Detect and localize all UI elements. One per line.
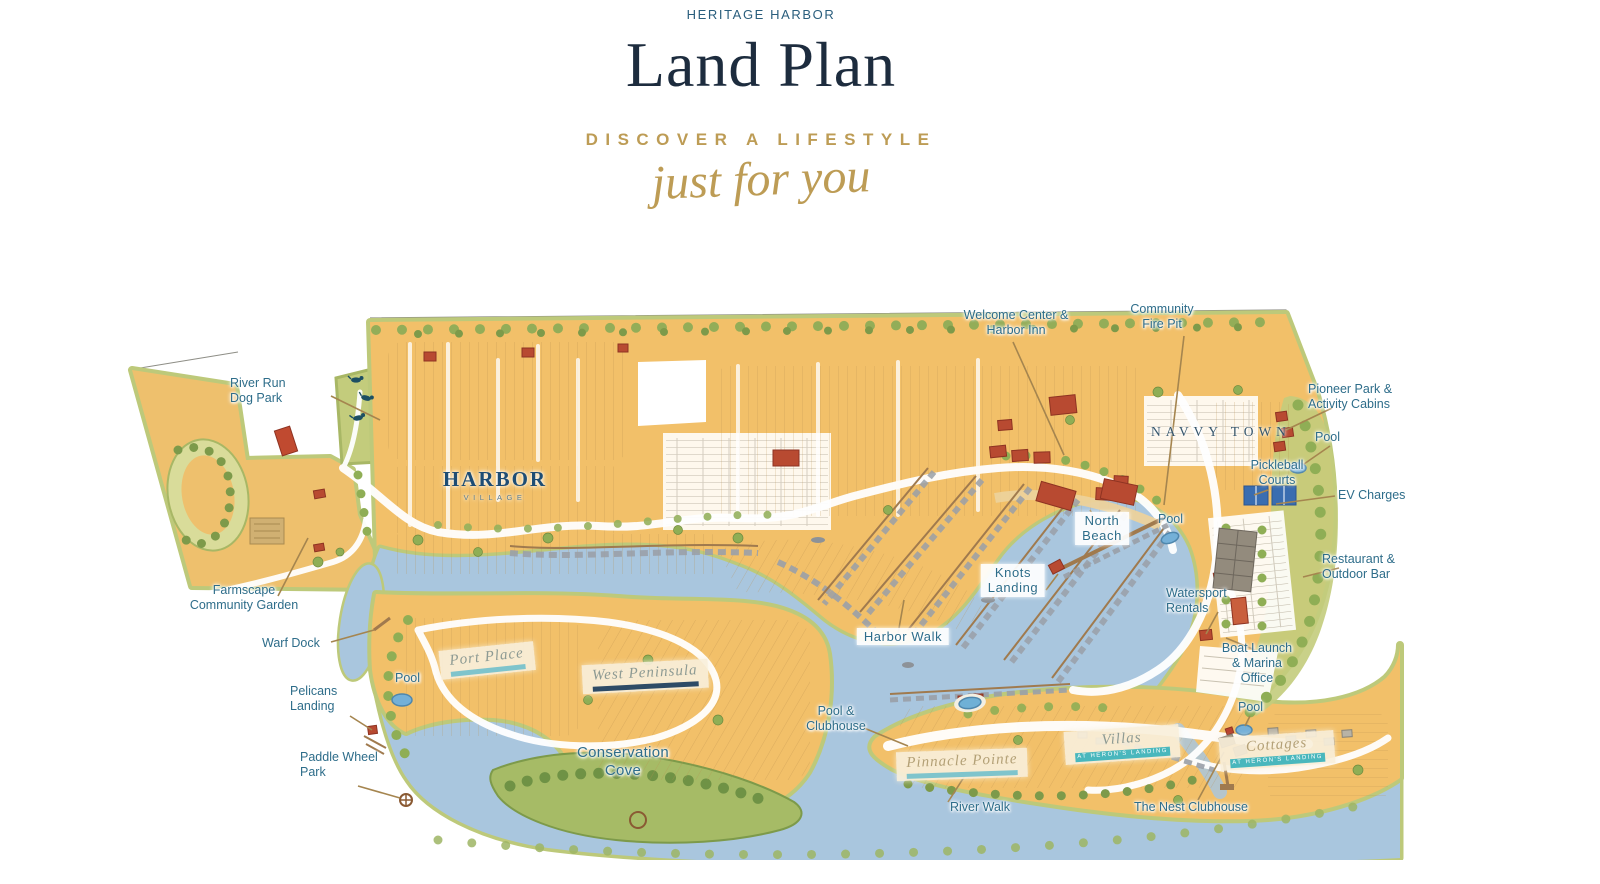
callout-pool-top-right: Pool [1315, 430, 1340, 445]
callout-pickleball-courts: Pickleball Courts [1251, 458, 1304, 488]
callout-welcome-center-harbor-inn: Welcome Center & Harbor Inn [964, 308, 1069, 338]
callout-pioneer-park-activity-cabins: Pioneer Park & Activity Cabins [1308, 382, 1392, 412]
callout-conservation-cove: Conservation Cove [577, 744, 669, 779]
callout-community-fire-pit: Community Fire Pit [1130, 302, 1193, 332]
callout-ev-charges: EV Charges [1338, 488, 1405, 503]
district-harbor-village-name: HARBOR [443, 467, 547, 492]
callout-warf-dock: Warf Dock [262, 636, 320, 651]
callout-river-walk: River Walk [950, 800, 1010, 815]
callout-paddle-wheel-park: Paddle Wheel Park [300, 750, 378, 780]
callout-watersport-rentals: Watersport Rentals [1166, 586, 1227, 616]
callout-farmscape-community-garden: Farmscape Community Garden [190, 583, 298, 613]
land-plan-map: HARBOR VILLAGE NAVVY TOWN Port Place Wes… [118, 300, 1408, 860]
callout-boat-launch-marina-office: Boat Launch & Marina Office [1222, 641, 1292, 685]
district-navvy-town: NAVVY TOWN [1151, 424, 1291, 440]
callout-restaurant-outdoor-bar: Restaurant & Outdoor Bar [1322, 552, 1395, 582]
district-harbor-village: HARBOR VILLAGE [443, 467, 547, 502]
callout-river-run-dog-park: River Run Dog Park [230, 376, 286, 406]
banner-pinnacle-pointe-name: Pinnacle Pointe [906, 751, 1018, 772]
page-title: Land Plan [0, 28, 1522, 102]
callout-pool-clubhouse: Pool & Clubhouse [806, 704, 866, 734]
callout-pool-mid: Pool [1158, 512, 1183, 527]
community-name: HERITAGE HARBOR [0, 7, 1522, 22]
callout-pool-bottom-right: Pool [1238, 700, 1263, 715]
callout-pool-left: Pool [395, 671, 420, 686]
callout-pelicans-landing: Pelicans Landing [290, 684, 337, 714]
banner-pinnacle-pointe-band [907, 770, 1018, 779]
callout-nest-clubhouse: The Nest Clubhouse [1134, 800, 1248, 815]
district-harbor-village-sub: VILLAGE [443, 493, 547, 502]
callout-harbor-walk: Harbor Walk [857, 628, 949, 645]
banner-pinnacle-pointe: Pinnacle Pointe [896, 748, 1028, 782]
callout-north-beach: North Beach [1075, 512, 1129, 545]
callout-knots-landing: Knots Landing [981, 564, 1045, 597]
